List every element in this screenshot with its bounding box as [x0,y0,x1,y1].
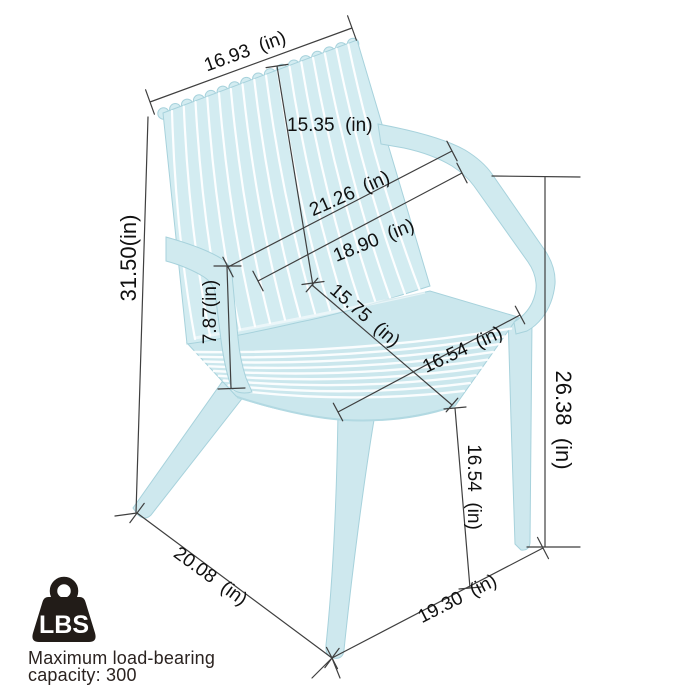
dim-label-armrest-to-floor: 26.38 (in) [551,370,576,469]
chair-dimension-diagram: 16.93 (in) 15.35 (in) 21.26 (in) 18.90 (… [0,0,700,700]
chair-front-leg [326,412,374,658]
dim-label-armrest-height: 7.87(in) [200,280,221,344]
load-capacity-caption-line2: capacity: 300 [28,665,137,685]
dim-label-base-width: 19.30 (in) [415,570,501,628]
dim-label-seat-height: 16.54 (in) [463,444,484,530]
dim-label-overall-height: 31.50(in) [116,215,141,302]
load-capacity-badge: LBS [32,581,95,643]
chair-back-right-leg [508,315,532,550]
dim-label-back-height: 15.35 (in) [287,115,373,136]
chair-front-left-leg [133,382,248,518]
dim-line-overall-height [115,117,148,516]
dim-label-base-depth: 20.08 (in) [169,543,251,610]
product-dimension-figure: 16.93 (in) 15.35 (in) 21.26 (in) 18.90 (… [0,0,700,700]
dim-line-armrest-to-floor [492,176,580,547]
dim-label-top-width: 16.93 (in) [201,27,289,76]
lbs-icon-label: LBS [39,611,89,639]
